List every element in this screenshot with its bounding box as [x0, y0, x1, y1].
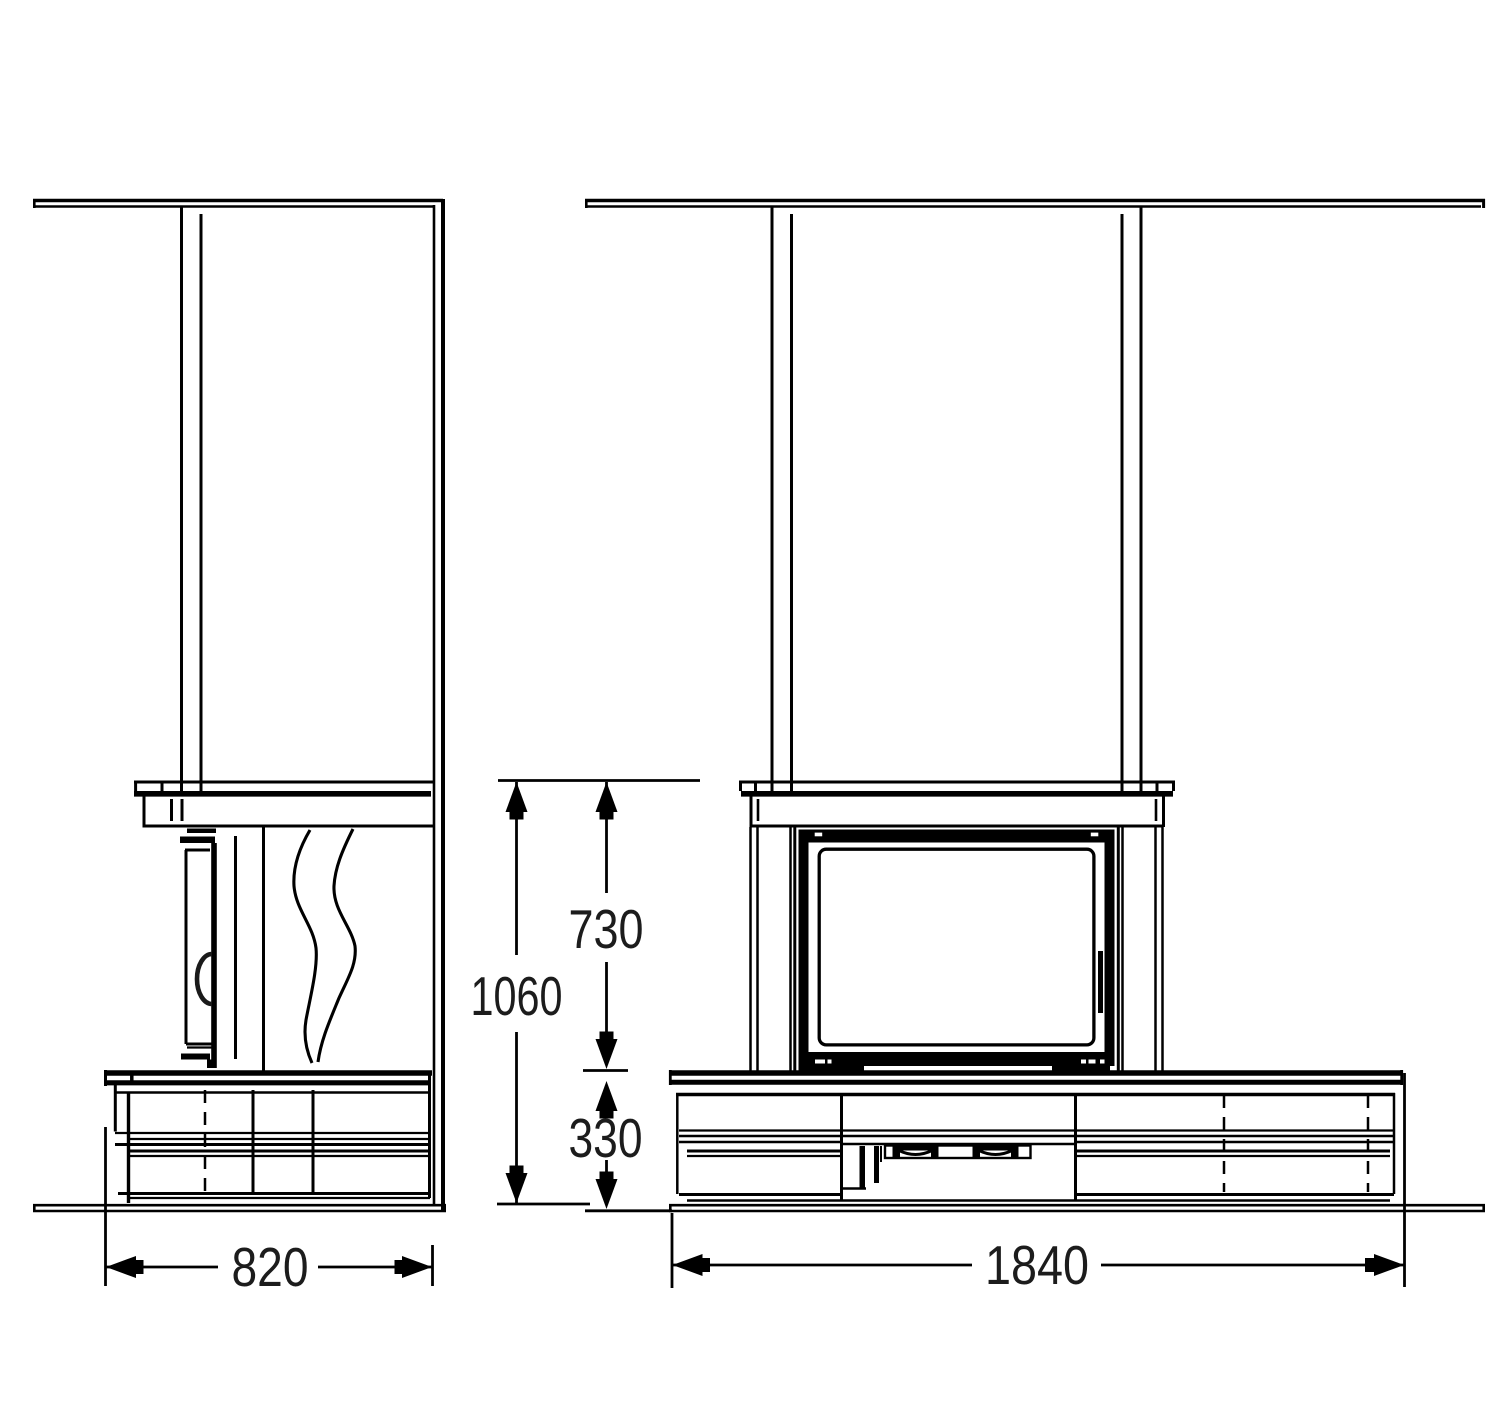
svg-text:330: 330 [569, 1107, 643, 1169]
svg-text:730: 730 [569, 898, 644, 960]
svg-text:1840: 1840 [985, 1234, 1089, 1296]
svg-text:1060: 1060 [471, 965, 563, 1027]
svg-text:820: 820 [232, 1236, 309, 1298]
